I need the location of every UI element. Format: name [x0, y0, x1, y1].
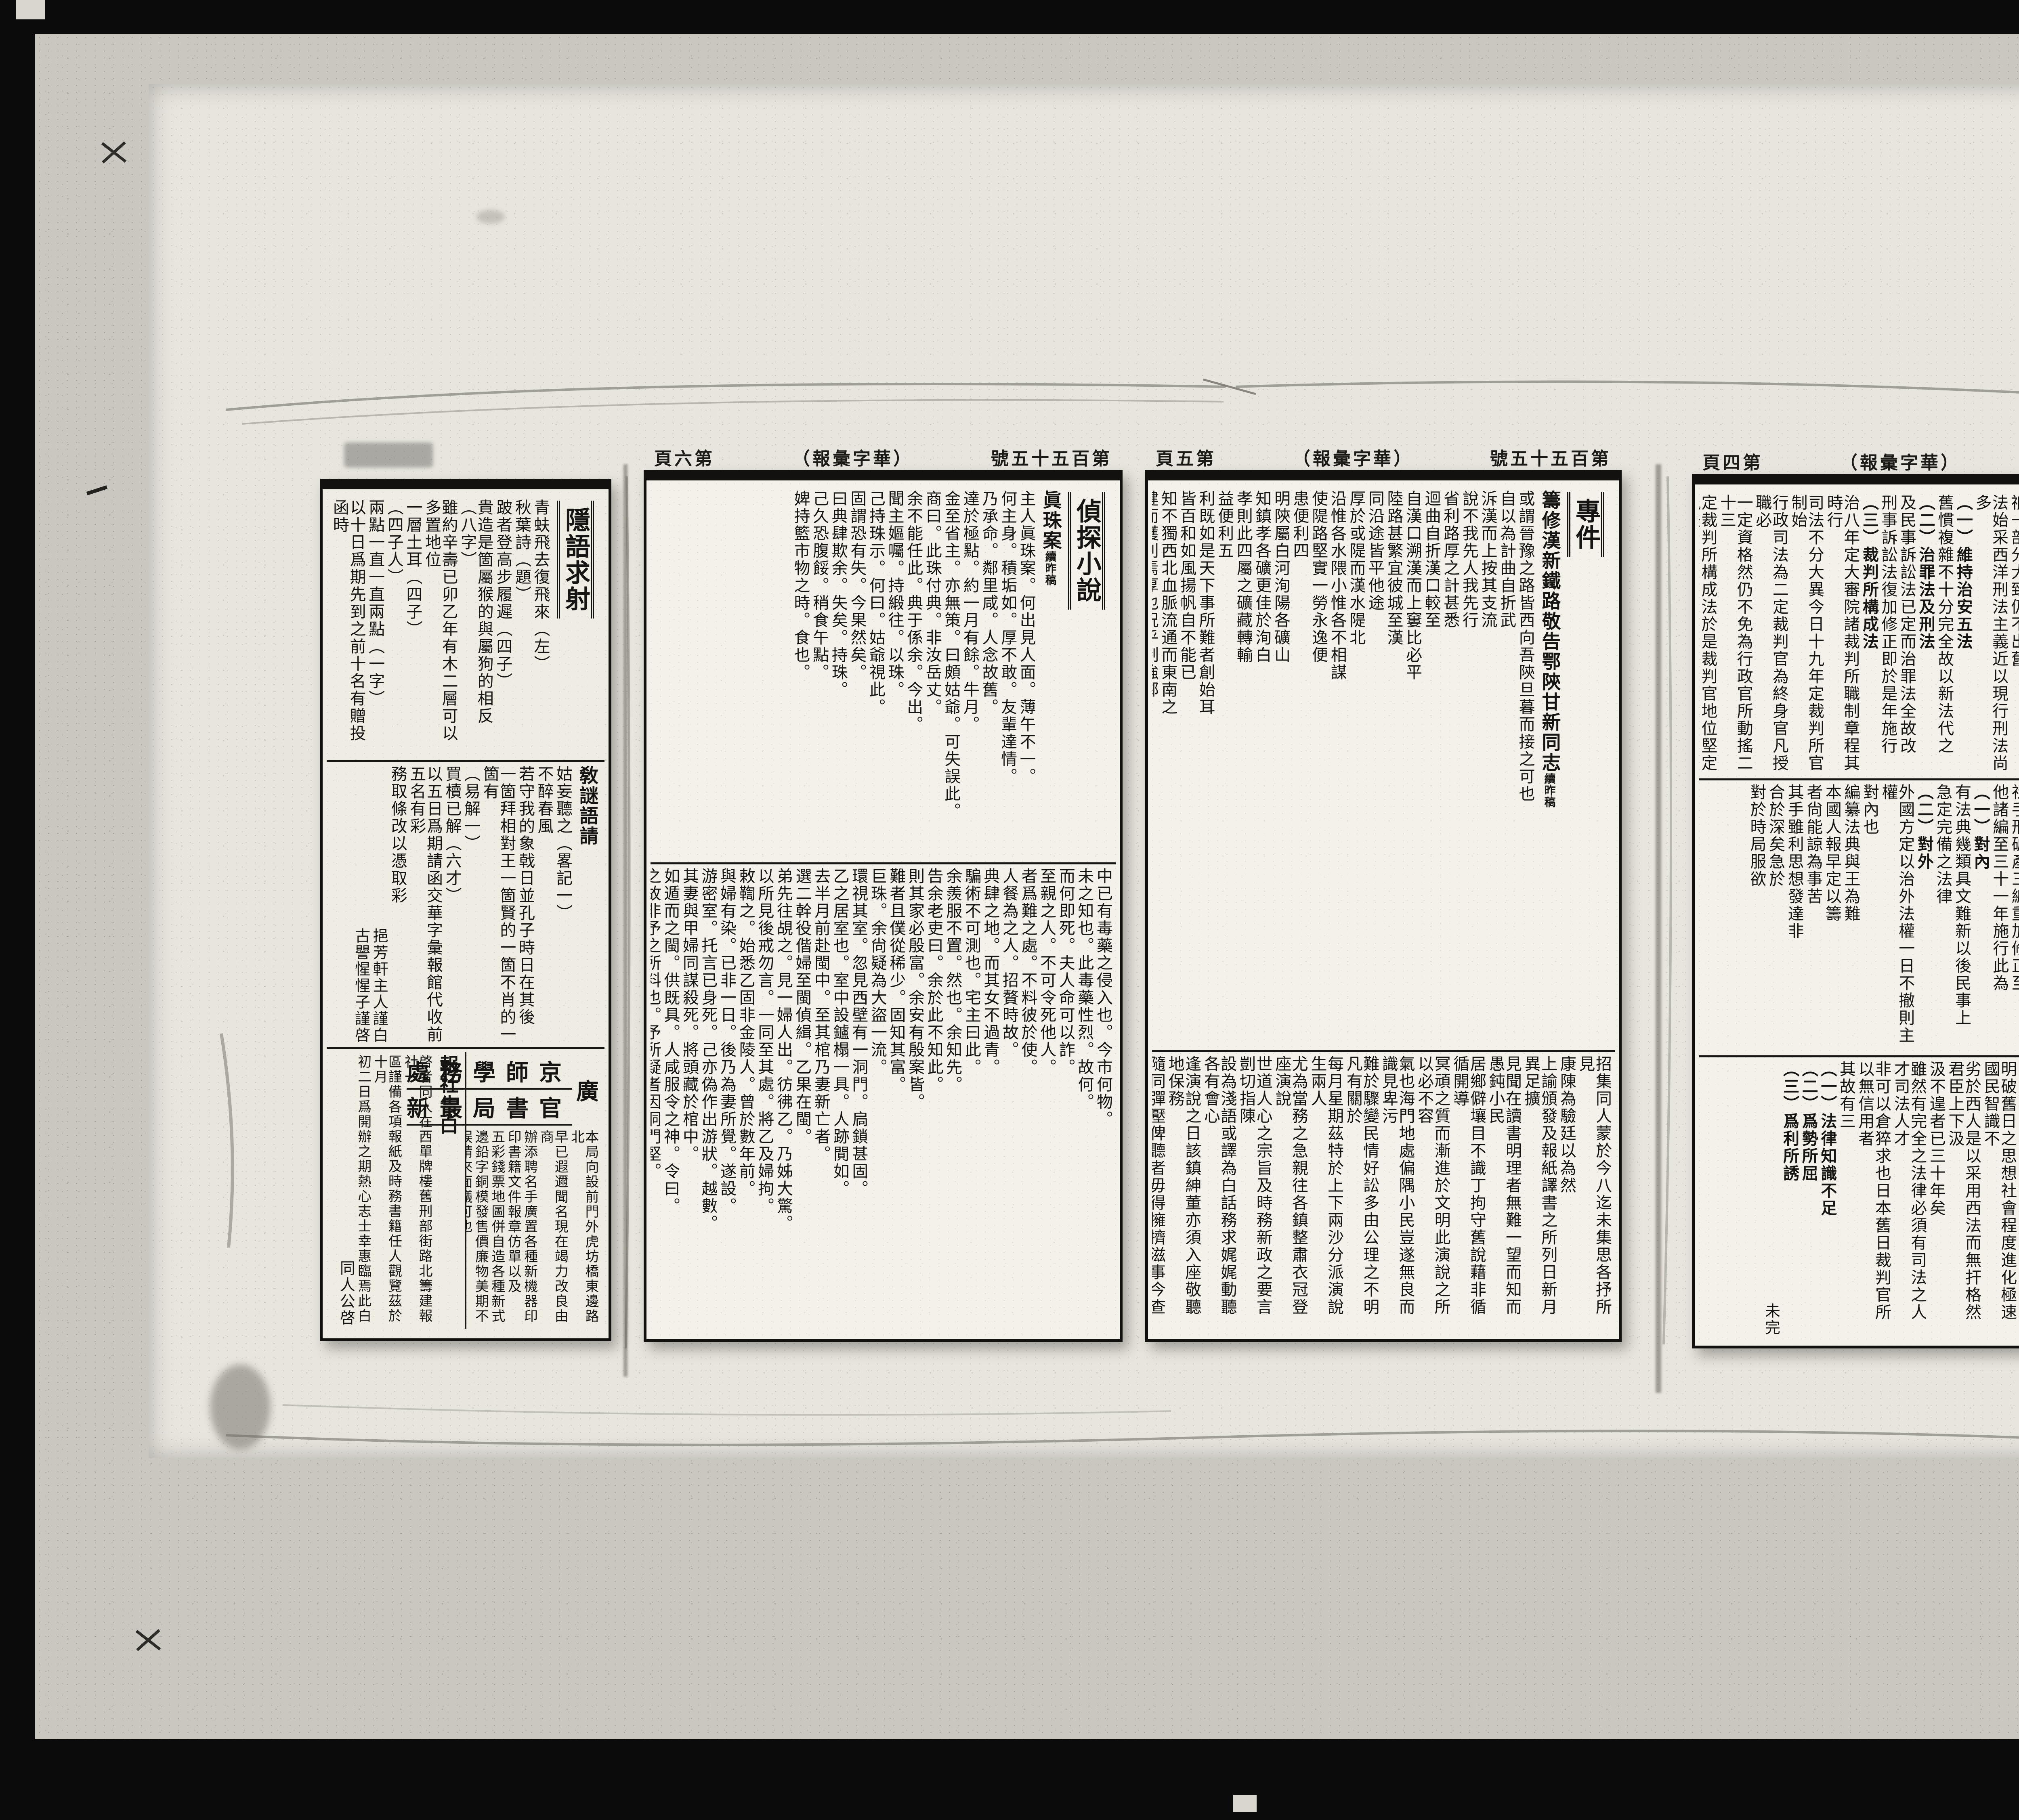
text-column: 巨珠。余尙疑為大盜一流。 [869, 868, 886, 1329]
column-text: 己久恐腹餒。稍食午點。 [810, 490, 829, 681]
text-column: （一）維持治安五法 [1954, 494, 1971, 775]
section-title: 偵探小說 [1068, 492, 1105, 610]
column-text: 則其家必殷富。余安有殷案皆。 [906, 868, 924, 1111]
column-text: 初二日爲開辦之期熱心志士幸惠臨焉此白 [355, 1055, 371, 1323]
column-text: 一定資格然仍不免為行政官所動搖二十三 [1717, 494, 1753, 772]
article-block: 步驟次而不能進步主義則係純必不可而改雖然以進步主義之法律治不進步之人民是徇外人之… [1699, 1055, 2019, 1339]
text-column: 每月星期茲特於上下兩沙分派演說生兩人 [1309, 1055, 1342, 1329]
column-text: 隨同彈壓俾聽者毋得擁擠滋事今查有上下沙 [1152, 1055, 1165, 1316]
text-column: 未之知也。此毒藥性烈。故何。 [1076, 868, 1093, 1329]
text-column: 同人公啓 [338, 1055, 354, 1326]
text-column: 秋葉詩（題） [513, 499, 530, 757]
text-column: 泝漢而上按其支流 [1479, 490, 1496, 1047]
running-head-page: 第五頁 [1156, 444, 1216, 470]
column-text: 買櫝已解（六才） [443, 765, 462, 904]
text-column: 省利路厚之計甚悉 [1442, 490, 1459, 1047]
column-text: 劣於西人是以采用西法而無扞格然君臣上下汲 [1946, 1061, 1981, 1321]
column-text: 合於深矣急於 [1766, 784, 1785, 888]
text-column: 氣也海門地處偏隅小民豈遂無良而識見卑污 [1380, 1055, 1413, 1329]
column-text: 知鎮孝各礦更佳於洵白 [1253, 490, 1271, 664]
registration-mark [133, 1625, 163, 1655]
text-column: 乙之居室也。室中設鑪榻一具。人跡閴如。 [831, 868, 848, 1329]
film-nick [16, 0, 45, 19]
column-text: 益便利五 [1215, 490, 1234, 560]
text-column: 上諭頒發及報紙譯書之所列日新月異足擴 [1522, 1055, 1556, 1329]
text-column: 行政司法為二定裁判官為終身官凡授職必 [1754, 494, 1787, 775]
text-column: 區謹備各項報紙及時務書籍任人觀覽茲於十月 [372, 1055, 401, 1326]
text-column: 以所見後戒勿言。一同至其處。將乙及婦拘。 [756, 868, 773, 1329]
text-column: 陸路甚繁宜彼城至漢 [1385, 490, 1402, 1047]
column-text: 對於時局服欲 [1748, 784, 1766, 888]
column-text: （一）維持治安五法 [1954, 494, 1973, 650]
article-block: 專件日本法政大學速成科第一次講談會筆記續昨稿明治二年定新律綱領為本六年頒改定律例… [1699, 491, 2019, 778]
text-column: 不醉春風 [535, 765, 552, 1044]
column-text: 秋葉詩（題） [512, 499, 531, 603]
page-body: 隱語求射青蚨飛去復飛來（左）秋葉詩（題）跛者登高步履遲（四子）貴造是箇屬猴的與屬… [320, 479, 611, 1341]
text-column: 或謂晉豫之路皆西向吾陝旦暮而接之可也 [1517, 490, 1534, 1047]
advert-banner-row: 官書局最新 [407, 1090, 572, 1126]
dust-smudge [476, 210, 505, 224]
sheet-fold-edge [1656, 464, 1661, 1393]
text-column: 明陝屬白河洵陽各礦山 [1272, 490, 1289, 1047]
newspaper-page: 第百五十五號（華字彙報）第四頁專件日本法政大學速成科第一次講談會筆記續昨稿明治二… [1692, 448, 2019, 1348]
column-text: 商曰。此珠付典。非汝岳丈。 [923, 490, 942, 716]
column-text: 不醉春風 [535, 765, 554, 835]
column-text: 專件 [1571, 498, 1601, 551]
column-text: 曰典肆欺余。失矣。持珠。 [829, 490, 848, 698]
column-text: 外國方定以治外法權一日不撤則主權 [1879, 784, 1915, 1044]
column-text: 貴造是箇屬猴的與屬狗的相反（八字） [458, 499, 493, 725]
text-column: 治其弊必滋其患必烈日本維新以來吸泰西之文 [2017, 1061, 2019, 1336]
text-column: 未完 [1763, 1061, 1779, 1336]
advert-banner-rows: 京師學務處官書局最新 [407, 1054, 572, 1126]
column-text: 尤為當務之急親往各鎮整肅衣冠登座演說 [1272, 1055, 1308, 1316]
text-column: 知不獨西北血脈流通而東南之 [1159, 490, 1176, 1047]
column-text: 如遁而之閩。供既具。人咸服令之神。令曰。 [661, 868, 680, 1215]
column-text: 偵探小說 [1072, 498, 1102, 603]
film-notch [765, 2, 791, 21]
column-text: 招集同人蒙於今八迄未集思各抒所見 [1576, 1055, 1612, 1316]
text-column: 邊鉛字銅模發售價廉物美期不 [473, 1130, 487, 1326]
text-column: 以十日爲期先到之前十名有贈投函時 [331, 499, 364, 757]
column-text: 其妻與甲婦同謀殺死。將頭藏於棺中。 [680, 868, 699, 1163]
column-text: 刑事訴訟法復加修正即於是年施行 [1878, 494, 1897, 755]
column-text: 治八年定大審院諸裁判所職制章程其時行 [1824, 494, 1860, 772]
newspaper-page: 第百五十五號（華字彙報）第五頁專件籌修漢新鐵路敬告鄂陝甘新同志續昨稿或謂晉豫之路… [1145, 444, 1622, 1342]
column-text: 泝漢而上按其支流 [1478, 490, 1497, 629]
column-text: 或謂晉豫之路皆西向吾陝旦暮而接之可也 [1516, 490, 1535, 803]
column-text: 其故有三 [1837, 1061, 1855, 1130]
running-head: 第百五十五號（華字彙報）第五頁 [1145, 444, 1622, 470]
column-text: 告余老吏曰。余於此不知此。 [925, 868, 943, 1093]
column-text: 利既如是天下事所難者創始耳 [1196, 490, 1215, 716]
text-column: 何主身。積垢如。厚不敢。友輩達情。 [999, 490, 1016, 859]
column-text: 金至省主。亦無策。曰頗姑爺。可失誤此。 [942, 490, 960, 820]
column-text: 早已遐邇聞名現在竭力改良由商 [538, 1130, 568, 1324]
column-text: 同沿途皆平他途 [1366, 490, 1384, 612]
text-column: 隨同彈壓俾聽者毋得擁擠滋事今查有上下沙 [1152, 1055, 1164, 1329]
text-column: （一）對內 [1972, 784, 1989, 1052]
column-text: 印書籍文件報章仿單以及 [505, 1130, 521, 1294]
column-text: 一層土耳（四子） [403, 499, 422, 638]
section-title: 隱語求射 [557, 501, 594, 619]
column-text: 皆百和如風揚帆自不能已 [1177, 490, 1196, 681]
column-text: 游密室。托言已身死。己亦偽作出游狀。越數。 [699, 868, 718, 1232]
column-text: 者爲難之處。不料彼於使。 [1019, 868, 1037, 1076]
column-text: 五彩錢票地圖併自造各種新式 [489, 1130, 505, 1324]
column-text: 編纂法典與王為難 [1842, 784, 1860, 923]
column-text: 省利路厚之計甚悉 [1441, 490, 1459, 629]
text-column: 其故有三 [1837, 1061, 1854, 1336]
text-column: 兩點一直一直兩點（一字） [367, 499, 384, 757]
article-headline: 敎謎語請 [577, 765, 596, 1044]
column-text: 挹芳軒主人謹白 [370, 928, 388, 1044]
text-column: 人餐為之人。招贅時故。 [1000, 868, 1017, 1329]
film-notch [1211, 0, 1242, 29]
text-column: 使隄路堅實一勞永逸便 [1310, 490, 1327, 1047]
column-text: 知不獨西北血脈流通而東南之 [1159, 490, 1177, 716]
column-text: 使隄路堅實一勞永逸便 [1309, 490, 1328, 664]
headline-subnote: 續昨稿 [1044, 551, 1057, 586]
text-column: 厚於或隄而漢水隄北 [1347, 490, 1364, 1047]
text-column: 有法典幾類具文難新以後民事上 [1953, 784, 1970, 1052]
text-column: 難於驟變民情好訟多由公理之不明凡有關於 [1344, 1055, 1378, 1329]
column-text: 氣也海門地處偏隅小民豈遂無良而識見卑污 [1379, 1055, 1415, 1316]
text-column: 金至省主。亦無策。曰頗姑爺。可失誤此。 [942, 490, 959, 859]
text-column: 早已遐邇聞名現在竭力改良由商 [539, 1130, 567, 1326]
text-column: 己持珠示。何曰。姑爺視此。 [867, 490, 884, 859]
column-text: 說不我先人我先行 [1460, 490, 1478, 629]
column-text: （三）爲利所誘 [1780, 1061, 1799, 1182]
text-column: 居鄉僻壤目不識丁拘守舊說藉非循循開導 [1451, 1055, 1485, 1329]
newspaper-page: 隱語求射青蚨飛去復飛來（左）秋葉詩（題）跛者登高步履遲（四子）貴造是箇屬猴的與屬… [320, 479, 611, 1341]
running-head-paper: （華字彙報） [1840, 448, 1961, 474]
column-text: 至親之人。不可令死他人。 [1037, 868, 1056, 1076]
text-column: 尤為當務之急親往各鎮整肅衣冠登座演說 [1273, 1055, 1307, 1329]
column-text: （二）爲勢所屈 [1799, 1061, 1818, 1182]
text-column: 挹芳軒主人謹白 [371, 765, 387, 1044]
text-column: 祗一部分大致仍不出舊 [2009, 494, 2019, 775]
text-column: 世道人心之宗旨及時務新政之要言剴切指陳 [1238, 1055, 1271, 1329]
text-column: （三）裁判所構成法 [1860, 494, 1877, 775]
stamp-smudge [344, 442, 433, 468]
text-column: 古譻惺惺子謹啓 [353, 765, 369, 1044]
column-text: 聞主嫗囑。持緞往。以珠。 [886, 490, 904, 698]
text-column: 患便利四 [1291, 490, 1308, 1047]
text-column: （四子人） [385, 499, 402, 757]
column-text: 典肆之地。而其女不過青。 [981, 868, 999, 1076]
article-block: 新民法（五）民事訴訟法明治六年定訴答文例訴答文時別無訴訟法惟此件稍爲近國主義定民… [1699, 778, 2019, 1055]
column-text: 而何即死。夫人命可以詐。 [1056, 868, 1075, 1076]
text-column: 婢持籃市物之時。食也。 [792, 490, 809, 859]
column-text: 法始采西洋刑法主義近以現行刑法尚多 [1973, 494, 2008, 772]
column-text: 隱語求射 [561, 507, 590, 612]
ink-smudge [210, 1365, 271, 1449]
microfilm-scan: { "publication": { "issue": "第百五十五號", "n… [0, 0, 2019, 1820]
column-text: 務取條改以憑取彩 [388, 765, 407, 904]
column-text: （易解一） [462, 765, 480, 852]
text-column: （一）法律知識不足 [1819, 1061, 1836, 1336]
text-column: 孝則此四屬之礦藏轉輸 [1234, 490, 1251, 1047]
column-text: 設為淺語或譯為白話務求娓娓動聽各有會心 [1201, 1055, 1237, 1316]
text-column: 己久恐腹餒。稍食午點。 [811, 490, 828, 859]
column-text: 者尙能諒為事苦 [1804, 784, 1822, 905]
advert-text: 本局向設前門外虎坊橋東邊路北早已遐邇聞名現在竭力改良由商辦添聘名手廣置各種新機器… [466, 1127, 602, 1329]
article-block: 敎謎語請姑妄聽之（畧記一）不醉春風若守我的象戟日並孔子時日在其後一箇拜相對王一箇… [327, 760, 604, 1047]
text-column: 余不能任此。典于係余。今出。 [905, 490, 922, 859]
text-column: 乃承命。鄰里咸。人念故舊。 [980, 490, 997, 859]
text-column: 務取條改以憑取彩 [389, 765, 406, 1044]
text-column: 若守我的象戟日並孔子時日在其後 [516, 765, 533, 1044]
column-text: 居鄉僻壤目不識丁拘守舊說藉非循循開導 [1450, 1055, 1486, 1316]
text-column: 敕鞫之。始悉乙固非金陵人。曾於數年前。 [737, 868, 754, 1329]
text-column: （二）對外 [1915, 784, 1932, 1052]
column-text: 陸路甚繁宜彼城至漢 [1385, 490, 1403, 646]
column-text: 去半月前赴閩中。至其棺乃妻新亡者。 [812, 868, 830, 1163]
text-column: 辦添聘名手廣置各種新機器印 [522, 1130, 536, 1326]
text-column: 典肆之地。而其女不過青。 [982, 868, 999, 1329]
text-column: 五彩錢票地圖併自造各種新式 [489, 1130, 504, 1326]
column-text: 邊鉛字銅模發售價廉物美期不 [472, 1130, 489, 1324]
text-column: 誤請來面議可也 [466, 1130, 471, 1326]
column-text: 騙術不可測也。宅主曰此。 [962, 868, 981, 1076]
column-text: 敎謎語請 [576, 765, 598, 846]
text-column: 刑事訴訟法復加修正即於是年施行 [1879, 494, 1896, 775]
text-column: 定裁判所構成法於是裁判官地位堅定執法 [1699, 494, 1716, 775]
column-text: 主人眞珠案。何出見人面。薄午不一。 [1017, 490, 1036, 785]
column-text: 冥頑之質而漸進於文明此演說之所以必不容 [1415, 1055, 1450, 1316]
text-column: 聞主嫗囑。持緞往。以珠。 [886, 490, 903, 859]
text-column: 弟先往覘之。見一婦人出。彷彿乙。乃姊大驚。 [774, 868, 791, 1329]
running-head: 第百五十五號（華字彙報）第四頁 [1692, 448, 2019, 474]
column-text: （二）對外 [1915, 784, 1933, 870]
text-column: 司法不分大異今日十九年定裁判所官制始 [1789, 494, 1823, 775]
text-column: 貴造是箇屬猴的與屬狗的相反（八字） [459, 499, 492, 757]
column-text: （三）裁判所構成法 [1860, 494, 1878, 650]
text-column: 對於時局服欲 [1748, 784, 1765, 1052]
column-text: 固謂恐有失。今果然矣。 [848, 490, 866, 681]
text-column: 逢演說之日該鎮紳董亦須入座敬聽地保務 [1166, 1055, 1200, 1329]
column-text: 明破舊日之思想社會程度進化極速國民智識不 [1981, 1061, 2017, 1321]
text-column: （二）治罪法及刑法 [1917, 494, 1934, 775]
column-text: 同人公啓 [337, 1260, 355, 1326]
text-column: 選二幹役偕婦至閩偵緝。乙果在閩。 [793, 868, 810, 1329]
column-text: 以十日爲期先到之前十名有贈投函時 [330, 499, 366, 742]
running-head-paper: （華字彙報） [1293, 444, 1414, 470]
text-column: 其妻與甲婦同謀殺死。將頭藏於棺中。 [680, 868, 697, 1329]
registration-mark [99, 137, 129, 167]
text-column: 而何即死。夫人命可以詐。 [1057, 868, 1074, 1329]
text-column: 設為淺語或譯為白話務求娓娓動聽各有會心 [1202, 1055, 1235, 1329]
column-text: 人餐為之人。招贅時故。 [1000, 868, 1018, 1059]
text-column: 冥頑之質而漸進於文明此演說之所以必不容 [1415, 1055, 1449, 1329]
text-column: 青蚨飛去復飛來（左） [532, 499, 549, 757]
text-column: 如遁而之閩。供既具。人咸服令之神。令曰。 [662, 868, 679, 1329]
text-column: 舊慣複雜不十分完全故以新法代之 [1936, 494, 1953, 775]
column-text: 雖然有完全之法律必須有司法之人才司法人才 [1891, 1061, 1927, 1321]
text-column: 迴曲自折漢口較至 [1423, 490, 1440, 1047]
column-text: 及民事訴訟法已定而治罪法全故改 [1897, 494, 1916, 755]
column-text: 汲不遑者已三十年矣 [1927, 1061, 1946, 1217]
column-text: 治其弊必滋其患必烈日本維新以來吸泰西之文 [2017, 1061, 2019, 1321]
column-text: 青蚨飛去復飛來（左） [531, 499, 550, 673]
column-text: 乙之居室也。室中設鑪榻一具。人跡閴如。 [831, 868, 849, 1197]
text-column: 汲不遑者已三十年矣 [1927, 1061, 1944, 1336]
column-text: 未完 [1763, 1303, 1780, 1336]
column-text: 敕鞫之。始悉乙固非金陵人。曾於數年前。 [737, 868, 755, 1197]
column-text: 孝則此四屬之礦藏轉輸 [1234, 490, 1253, 664]
running-head-issue: 第百五十五號 [991, 444, 1112, 470]
text-column: 跛者登高步履遲（四子） [494, 499, 511, 757]
column-text: 患便利四 [1291, 490, 1309, 560]
column-text: 選二幹役偕婦至閩偵緝。乙果在閩。 [793, 868, 812, 1145]
column-text: 古譻惺惺子謹啓 [353, 928, 370, 1044]
column-text: 之故非予之所料也。予所疑者因洞門堅。 [651, 868, 661, 1180]
text-column: 同沿途皆平他途 [1366, 490, 1383, 1047]
text-column: 一箇拜相對王一箇賢的一箇不肖的一箇有 [481, 765, 514, 1044]
text-column: 本局向設前門外虎坊橋東邊路北 [569, 1130, 598, 1326]
text-column: 雖然有完全之法律必須有司法之人才司法人才 [1892, 1061, 1925, 1336]
article-block: 專件籌修漢新鐵路敬告鄂陝甘新同志續昨稿或謂晉豫之路皆西向吾陝旦暮而接之可也自以為… [1152, 487, 1615, 1050]
column-text: 一箇拜相對王一箇賢的一箇不肖的一箇有 [481, 765, 516, 1043]
column-text: （一）法律知識不足 [1818, 1061, 1836, 1217]
column-text: 姑妄聽之（畧記一） [554, 765, 572, 922]
column-text: 其手雖利思想發達非 [1785, 784, 1804, 940]
column-text: 見聞在讀書明理者無難一望而知而愚鈍小民 [1486, 1055, 1522, 1316]
text-column: 一定資格然仍不免為行政官所動搖二十三 [1718, 494, 1752, 775]
running-head-issue: 第百五十五號 [1490, 444, 1611, 470]
text-column: 曰典肆欺余。失矣。持珠。 [829, 490, 846, 859]
column-text: 自漢口溯漢而上窶比必平 [1403, 490, 1422, 681]
page-body: 專件日本法政大學速成科第一次講談會筆記續昨稿明治二年定新律綱領為本六年頒改定律例… [1692, 474, 2019, 1348]
column-text: 雖約辛壽已卯乙年有木二層可以多置地位 [422, 499, 458, 742]
text-column: 招集同人蒙於今八迄未集思各抒所見 [1577, 1055, 1610, 1329]
column-text: 達於極點。約一月有餘。牛月。 [961, 490, 979, 733]
text-column: 法始采西洋刑法主義近以現行刑法尚多 [1973, 494, 2007, 775]
column-text: 非可以倉猝求也日本舊日裁判官所以無信用者 [1856, 1061, 1891, 1321]
column-text: 余不能任此。典于係余。今出。 [904, 490, 923, 733]
text-column: 難者且僕從稀少。固知其富。 [888, 868, 905, 1329]
text-column: 與婦有染。已非一日。後乃為妻所覺。遂設。 [718, 868, 735, 1329]
film-nick [1233, 1795, 1257, 1812]
text-column: 非可以倉猝求也日本舊日裁判官所以無信用者 [1856, 1061, 1890, 1336]
text-column: （二）爲勢所屈 [1800, 1061, 1817, 1336]
column-text: 沿惟各水隈小惟各不相謀 [1328, 490, 1347, 681]
column-text: 世道人心之宗旨及時務新政之要言剴切指陳 [1237, 1055, 1272, 1316]
column-text: 何主身。積垢如。厚不敢。友輩達情。 [998, 490, 1017, 785]
text-column: 買櫝已解（六才） [443, 765, 460, 1044]
text-column: 社手形破產三編重加修正至 [2009, 784, 2019, 1052]
running-head-page: 第四頁 [1702, 448, 1763, 474]
column-text: 對內也 [1860, 784, 1879, 836]
text-column: 知鎮孝各礦更佳於洵白 [1253, 490, 1270, 1047]
column-text: 急定完備之法律 [1933, 784, 1952, 905]
column-text: 誤請來面議可也 [466, 1130, 472, 1234]
article-block: 招集同人蒙於今八迄未集思各抒所見康陳為驗廷以為然上諭頒發及報紙譯書之所列日新月異… [1152, 1050, 1615, 1333]
column-text: 自以為計曲自折武 [1497, 490, 1516, 629]
text-column: 他諸編至三十一年施行此為 [1991, 784, 2008, 1052]
advert-block: 廣京師學務處官書局最新本局向設前門外虎坊橋東邊路北早已遐邇聞名現在竭力改良由商辦… [327, 1047, 604, 1332]
article-block: 偵探小說眞珠案續昨稿主人眞珠案。何出見人面。薄午不一。何主身。積垢如。厚不敢。友… [651, 487, 1116, 862]
column-text: 上諭頒發及報紙譯書之所列日新月異足擴 [1522, 1055, 1557, 1316]
text-column: 其手雖利思想發達非 [1786, 784, 1803, 1052]
column-text: 祗一部分大致仍不出舊 [2009, 494, 2019, 668]
text-column: 固謂恐有失。今果然矣。 [848, 490, 865, 859]
column-text: 婢持籃市物之時。食也。 [791, 490, 810, 681]
advert-banner-side: 廣 [576, 1074, 599, 1106]
film-notch [1168, 0, 1203, 26]
text-column: 皆百和如風揚帆自不能已 [1178, 490, 1195, 1047]
article-block: 中已有毒藥之侵入也。今市何物。未之知也。此毒藥性烈。故何。而何即死。夫人命可以詐… [651, 862, 1116, 1333]
advert-banner: 廣京師學務處官書局最新 [466, 1052, 602, 1127]
column-text: 中已有毒藥之侵入也。今市何物。 [1094, 868, 1112, 1128]
text-column: 急定完備之法律 [1934, 784, 1951, 1052]
text-column: 見聞在讀書明理者無難一望而知而愚鈍小民 [1487, 1055, 1520, 1329]
text-column: （易解一） [462, 765, 479, 1044]
text-column: 以五日爲期請函交華字彙報館代收前五名有彩 [408, 765, 441, 1044]
column-text: 厚於或隄而漢水隄北 [1347, 490, 1365, 646]
column-text: 舊慣複雜不十分完全故以新法代之 [1935, 494, 1954, 755]
column-text: 巨珠。余尙疑為大盜一流。 [868, 868, 887, 1076]
text-column: 康陳為驗廷以為然 [1558, 1055, 1575, 1329]
column-text: 跛者登高步履遲（四子） [493, 499, 512, 690]
newspaper-page: 第百五十五號（華字彙報）第六頁偵探小說眞珠案續昨稿主人眞珠案。何出見人面。薄午不… [644, 444, 1123, 1342]
text-column: 自以為計曲自折武 [1498, 490, 1515, 1047]
text-column: 者爲難之處。不料彼於使。 [1019, 868, 1036, 1329]
text-column: 騙術不可測也。宅主曰此。 [963, 868, 980, 1329]
text-column: 自漢口溯漢而上窶比必平 [1404, 490, 1421, 1047]
column-text: 本國人報早定以籌 [1823, 784, 1841, 923]
column-text: 區謹備各項報紙及時務書籍任人觀覽茲於十月 [371, 1055, 402, 1323]
text-column: 健而獲利焉厚也況乎制強鄰 [1152, 490, 1157, 1047]
text-column: 說不我先人我先行 [1460, 490, 1477, 1047]
column-text: 社手形破產三編重加修正至 [2009, 784, 2019, 992]
column-text: 余羨服不置。然也。余知先。 [943, 868, 962, 1093]
text-column: 外國方定以治外法權一日不撤則主權 [1880, 784, 1913, 1052]
text-column: 告余老吏曰。余於此不知此。 [925, 868, 942, 1329]
column-text: 康陳為驗廷以為然 [1557, 1055, 1576, 1194]
column-text: 司法不分大異今日十九年定裁判所官制始 [1788, 494, 1824, 772]
text-column: 余羨服不置。然也。余知先。 [944, 868, 961, 1329]
text-column: 達於極點。約一月有餘。牛月。 [961, 490, 978, 859]
text-column: 中已有毒藥之侵入也。今市何物。 [1094, 868, 1111, 1329]
text-column: 環視其室。忽見西壁有一洞門。扃鎖甚固。 [850, 868, 867, 1329]
article-block: 隱語求射青蚨飛去復飛來（左）秋葉詩（題）跛者登高步履遲（四子）貴造是箇屬猴的與屬… [327, 496, 604, 760]
column-text: 難於驟變民情好訟多由公理之不明凡有關於 [1344, 1055, 1379, 1316]
column-text: 定裁判所構成法於是裁判官地位堅定執法 [1699, 494, 1717, 772]
text-column: 者尙能諒為事苦 [1805, 784, 1822, 1052]
text-column: 劣於西人是以采用西法而無扞格然君臣上下汲 [1946, 1061, 1980, 1336]
column-text: 籌修漢新鐵路敬告鄂陝甘新同志 [1538, 490, 1561, 773]
text-column: 之故非予之所料也。予所疑者因洞門堅。 [651, 868, 660, 1329]
column-text: 弟先往覘之。見一婦人出。彷彿乙。乃姊大驚。 [774, 868, 793, 1232]
headline-subnote: 續昨稿 [1543, 773, 1556, 808]
text-column: 雖約辛壽已卯乙年有木二層可以多置地位 [423, 499, 456, 757]
column-text: 辦添聘名手廣置各種新機器印 [522, 1130, 538, 1324]
column-text: 行政司法為二定裁判官為終身官凡授職必 [1753, 494, 1788, 772]
column-text: 明陝屬白河洵陽各礦山 [1272, 490, 1290, 664]
bookstore-advert: 廣京師學務處官書局最新本局向設前門外虎坊橋東邊路北早已遐邇聞名現在竭力改良由商辦… [466, 1052, 602, 1329]
text-column: 主人眞珠案。何出見人面。薄午不一。 [1018, 490, 1035, 859]
column-text: 若守我的象戟日並孔子時日在其後 [516, 765, 535, 1026]
text-column: 益便利五 [1216, 490, 1233, 1047]
column-text: 與婦有染。已非一日。後乃為妻所覺。遂設。 [718, 868, 736, 1215]
article-headline: 眞珠案續昨稿 [1040, 490, 1060, 859]
column-text: 以五日爲期請函交華字彙報館代收前五名有彩 [407, 765, 443, 1043]
article-headline: 籌修漢新鐵路敬告鄂陝甘新同志續昨稿 [1539, 490, 1559, 1047]
column-text: 眞珠案 [1039, 490, 1062, 551]
text-column: 則其家必殷富。余安有殷案皆。 [906, 868, 923, 1329]
